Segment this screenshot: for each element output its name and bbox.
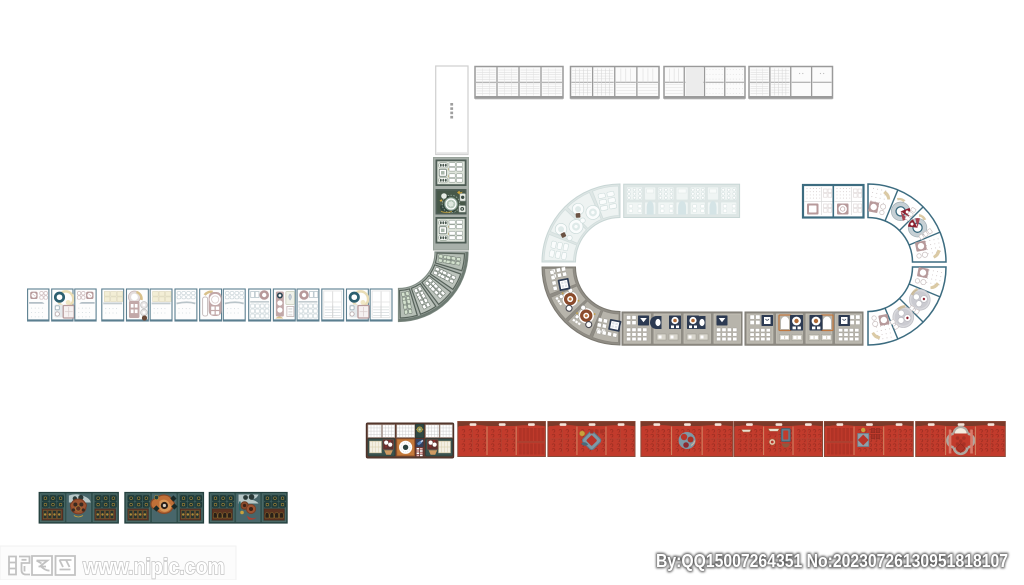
- svg-text:By:QQ15007264351 No:2023072613: By:QQ15007264351 No:20230726130951818107: [656, 550, 1008, 571]
- svg-text:www.nipic.com: www.nipic.com: [82, 554, 225, 579]
